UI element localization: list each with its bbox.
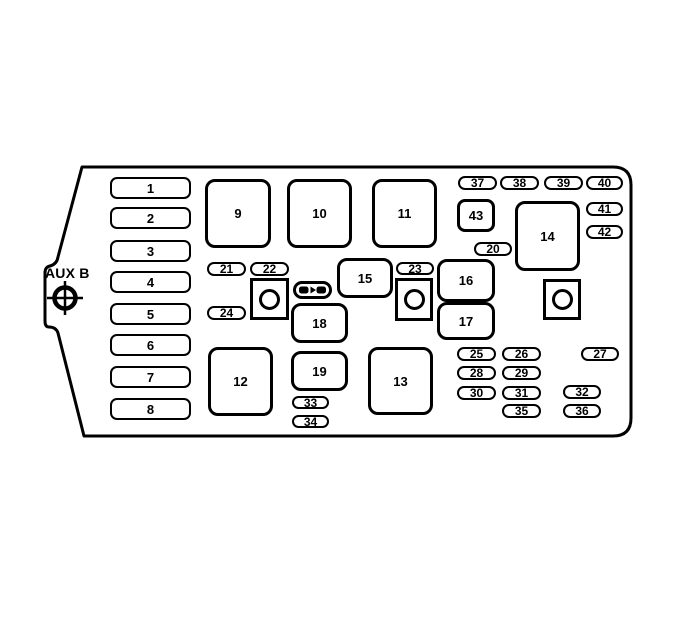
slot-5: 5 <box>110 303 191 325</box>
slot-26: 26 <box>502 347 541 361</box>
slot-20: 20 <box>474 242 512 256</box>
slot-6: 6 <box>110 334 191 356</box>
slot-39: 39 <box>544 176 583 190</box>
slot-4: 4 <box>110 271 191 293</box>
slot-8: 8 <box>110 398 191 420</box>
slot-16: 16 <box>437 259 495 302</box>
aux-b-target-icon <box>47 281 83 315</box>
slot-34: 34 <box>292 415 329 428</box>
relay-circle <box>552 289 573 310</box>
slot-22: 22 <box>250 262 289 276</box>
relay-circle <box>404 289 425 310</box>
slot-21: 21 <box>207 262 246 276</box>
slot-30: 30 <box>457 386 496 400</box>
slot-12: 12 <box>208 347 273 416</box>
slot-35: 35 <box>502 404 541 418</box>
slot-43: 43 <box>457 199 495 232</box>
slot-41: 41 <box>586 202 623 216</box>
aux-b-label: AUX B <box>45 265 90 281</box>
slot-19: 19 <box>291 351 348 391</box>
slot-29: 29 <box>502 366 541 380</box>
slot-23: 23 <box>396 262 434 275</box>
slot-28: 28 <box>457 366 496 380</box>
slot-37: 37 <box>458 176 497 190</box>
slot-7: 7 <box>110 366 191 388</box>
slot-14: 14 <box>515 201 580 271</box>
slot-13: 13 <box>368 347 433 415</box>
slot-1: 1 <box>110 177 191 199</box>
relay-socket <box>543 279 581 320</box>
slot-25: 25 <box>457 347 496 361</box>
slot-10: 10 <box>287 179 352 248</box>
slot-2: 2 <box>110 207 191 229</box>
slot-9: 9 <box>205 179 271 248</box>
relay-socket <box>250 278 289 320</box>
fuse-puller-icon <box>295 283 331 298</box>
fuse-block-diagram: AUX B 1234567891011121314151617181920212… <box>0 0 678 637</box>
slot-31: 31 <box>502 386 541 400</box>
slot-24: 24 <box>207 306 246 320</box>
slot-27: 27 <box>581 347 619 361</box>
slot-40: 40 <box>586 176 623 190</box>
slot-18: 18 <box>291 303 348 343</box>
slot-15: 15 <box>337 258 393 298</box>
slot-32: 32 <box>563 385 601 399</box>
slot-33: 33 <box>292 396 329 409</box>
relay-circle <box>259 289 280 310</box>
relay-socket <box>395 278 433 321</box>
slot-11: 11 <box>372 179 437 248</box>
slot-36: 36 <box>563 404 601 418</box>
slot-3: 3 <box>110 240 191 262</box>
slot-17: 17 <box>437 302 495 340</box>
slot-38: 38 <box>500 176 539 190</box>
slot-42: 42 <box>586 225 623 239</box>
